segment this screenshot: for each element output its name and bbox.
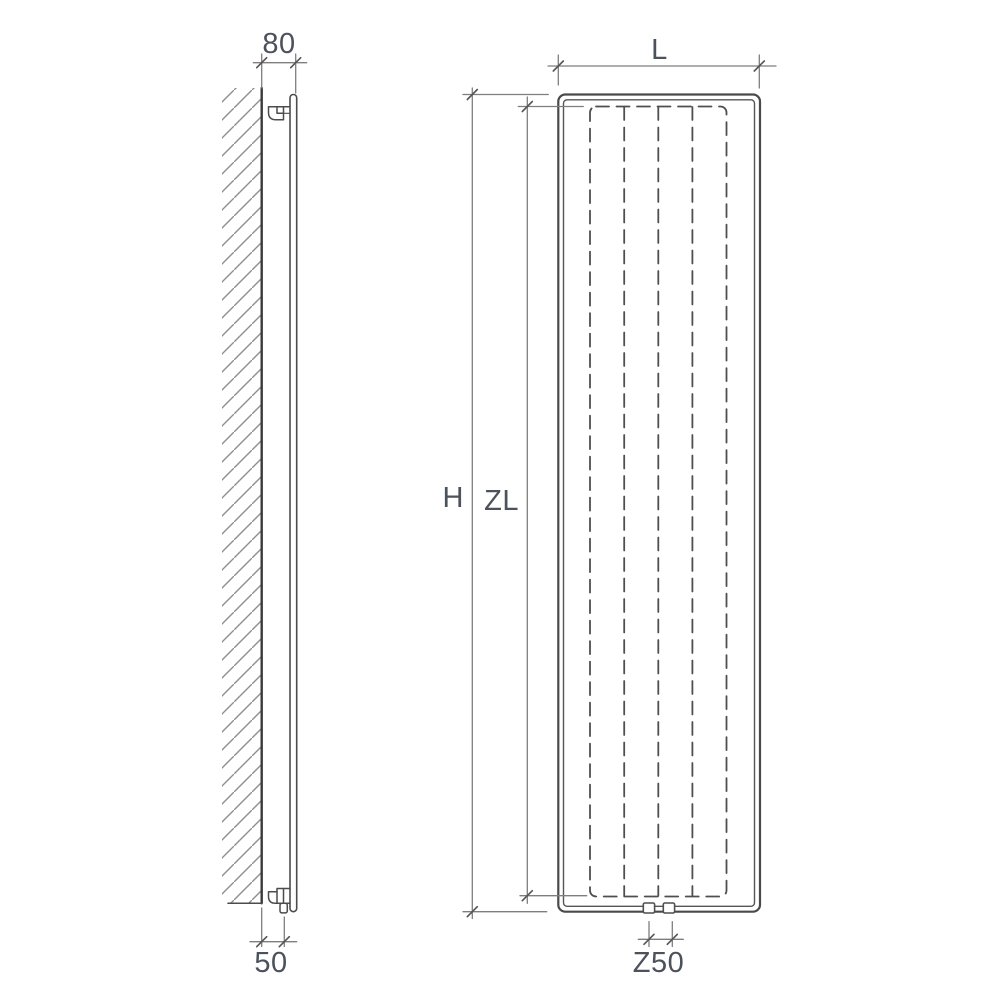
dim-label-L: L <box>651 34 668 66</box>
dim-label-50: 50 <box>254 947 287 979</box>
dimension-50 <box>250 908 297 947</box>
dim-label-80: 80 <box>262 28 295 60</box>
mounting-bracket-bottom <box>269 889 291 904</box>
front-view: L H ZL <box>443 34 776 979</box>
bottom-connector-left <box>643 903 654 913</box>
radiator-side-panel <box>290 95 297 912</box>
dim-label-ZL: ZL <box>484 485 519 517</box>
mounting-bracket-top <box>269 107 291 120</box>
pipe-stub <box>280 903 287 913</box>
dimension-Z50 <box>638 922 683 947</box>
bottom-connector-right <box>663 903 674 913</box>
radiator-dimension-diagram: 80 50 <box>0 0 1000 1000</box>
dim-label-Z50: Z50 <box>633 947 684 979</box>
wall-hatching <box>222 88 262 903</box>
dim-label-H: H <box>443 482 464 514</box>
side-view: 80 50 <box>222 28 307 979</box>
technical-drawing-canvas: 80 50 <box>0 0 1000 1000</box>
